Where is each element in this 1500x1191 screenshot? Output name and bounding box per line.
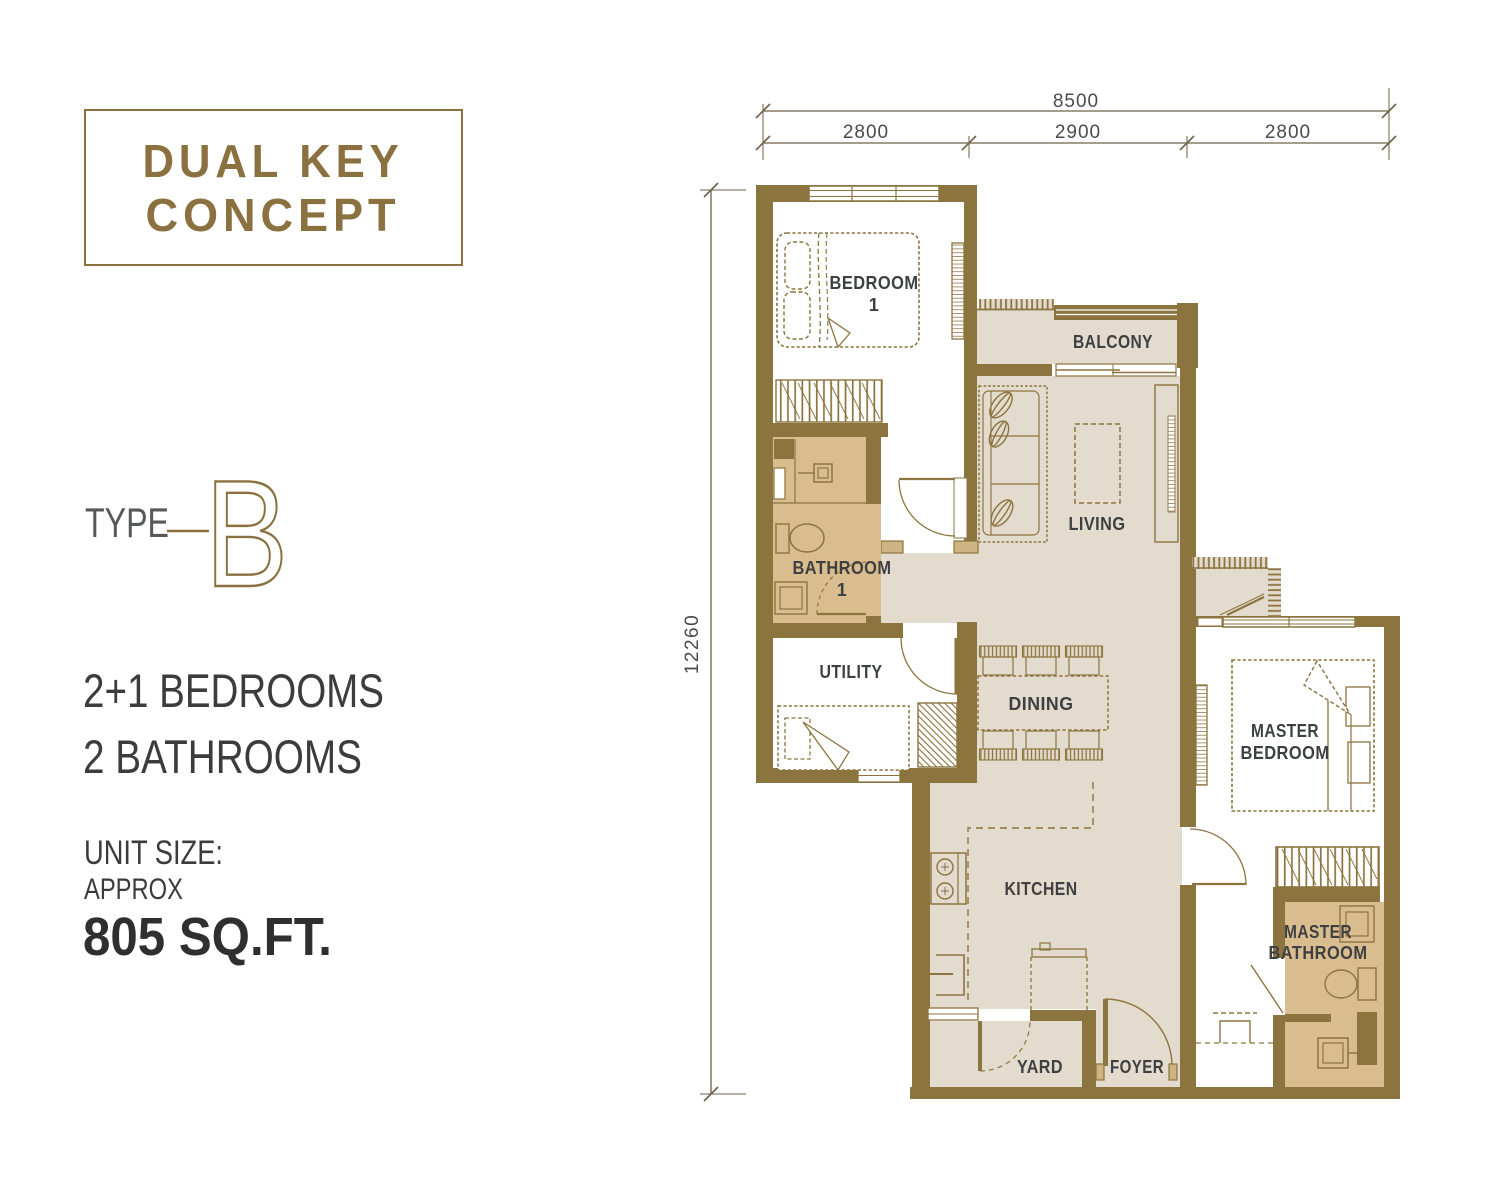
svg-text:DINING: DINING — [1009, 694, 1074, 714]
svg-text:2+1 BEDROOMS: 2+1 BEDROOMS — [83, 664, 384, 717]
svg-text:DUAL KEY: DUAL KEY — [143, 135, 404, 187]
svg-text:MASTER: MASTER — [1251, 721, 1319, 741]
svg-text:2900: 2900 — [1055, 122, 1101, 143]
svg-text:UTILITY: UTILITY — [820, 662, 883, 682]
svg-text:12260: 12260 — [682, 614, 703, 674]
svg-text:YARD: YARD — [1017, 1057, 1063, 1077]
svg-text:BALCONY: BALCONY — [1073, 332, 1153, 352]
svg-text:2800: 2800 — [1265, 122, 1311, 143]
svg-text:LIVING: LIVING — [1069, 514, 1126, 534]
svg-text:FOYER: FOYER — [1110, 1057, 1164, 1077]
svg-text:BEDROOM: BEDROOM — [1241, 743, 1330, 763]
svg-text:1: 1 — [869, 295, 880, 315]
svg-text:2800: 2800 — [843, 122, 889, 143]
svg-text:805 SQ.FT.: 805 SQ.FT. — [83, 907, 332, 967]
svg-text:2 BATHROOMS: 2 BATHROOMS — [83, 730, 362, 783]
svg-text:B: B — [205, 449, 288, 619]
svg-text:BATHROOM: BATHROOM — [1269, 943, 1368, 963]
svg-text:BEDROOM: BEDROOM — [830, 273, 919, 293]
svg-text:TYPE: TYPE — [85, 499, 169, 546]
svg-text:UNIT SIZE:: UNIT SIZE: — [84, 834, 223, 872]
svg-text:KITCHEN: KITCHEN — [1005, 879, 1078, 899]
svg-text:APPROX: APPROX — [84, 873, 183, 906]
svg-text:BATHROOM: BATHROOM — [793, 558, 892, 578]
svg-text:8500: 8500 — [1053, 91, 1099, 112]
svg-text:1: 1 — [837, 580, 848, 600]
svg-text:CONCEPT: CONCEPT — [146, 189, 401, 241]
svg-text:MASTER: MASTER — [1284, 922, 1352, 942]
